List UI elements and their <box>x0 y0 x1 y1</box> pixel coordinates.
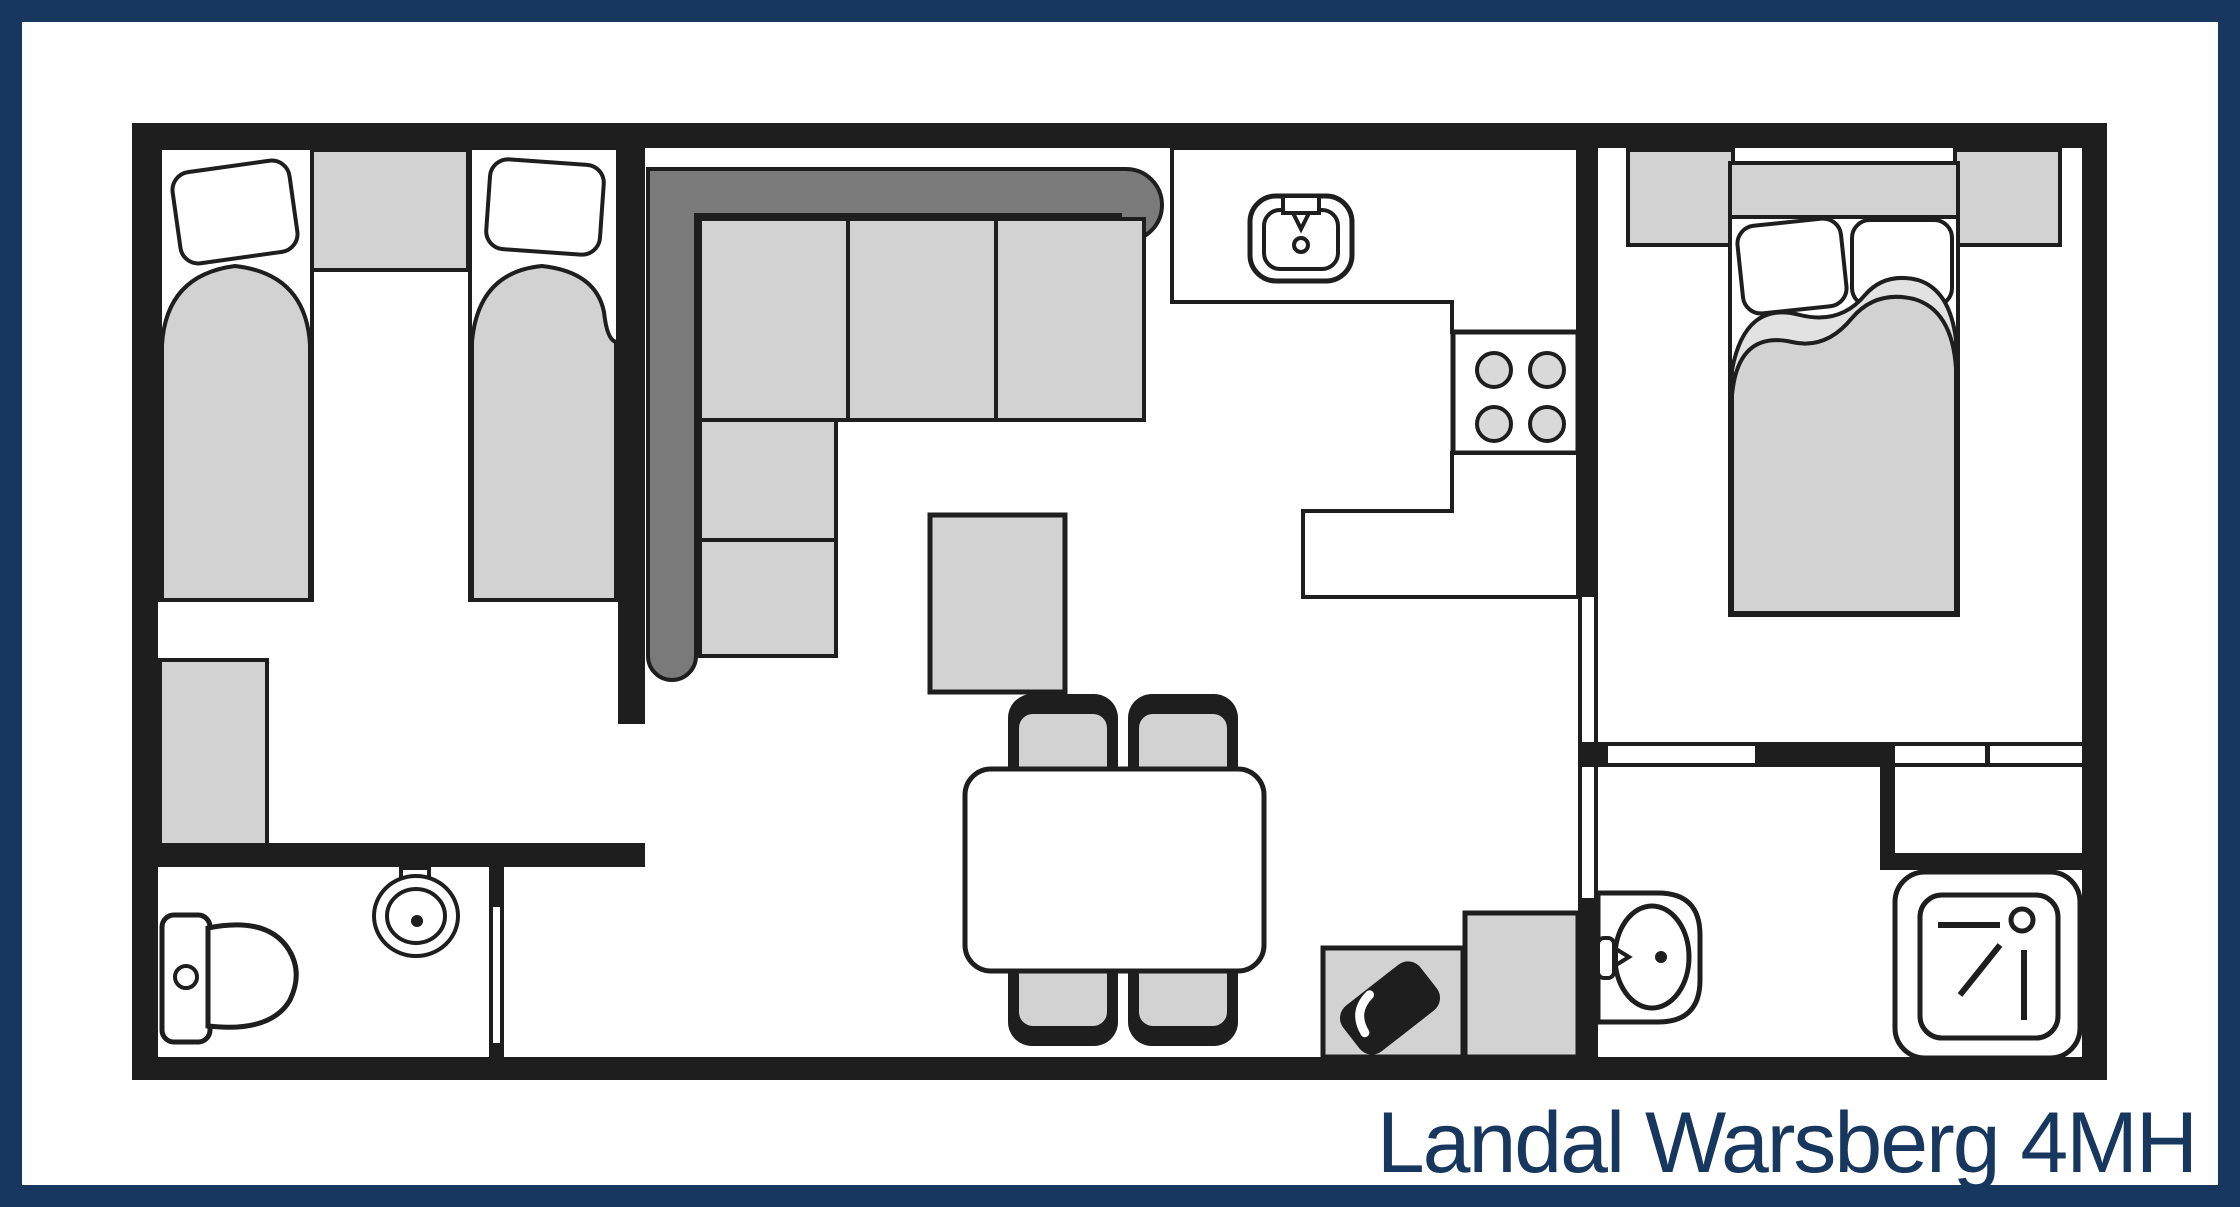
nightstand-icon <box>1628 150 1733 245</box>
door-opening-icon <box>1578 597 1582 742</box>
wall-junction <box>1578 742 1608 767</box>
wall-top <box>132 123 2107 148</box>
wall-bedroom-right-bottom <box>1755 742 1895 767</box>
wall-toilet-room <box>489 867 504 907</box>
sofa-cushion <box>700 219 848 420</box>
wall-bathroom-right <box>1578 898 1598 1057</box>
wall-closet <box>1880 742 1895 870</box>
wardrobe-icon <box>160 660 267 845</box>
shower-icon <box>1895 872 2080 1058</box>
coffee-table-icon <box>930 515 1065 692</box>
sideboard-icon <box>1465 913 1578 1057</box>
blanket-icon <box>472 266 616 600</box>
pillow-icon <box>485 158 605 256</box>
wall-right <box>2082 123 2107 1080</box>
blanket-icon <box>162 266 310 600</box>
washbasin-icon <box>1598 893 1700 1022</box>
wall-closet-bottom <box>1895 853 2082 870</box>
wall-bottom <box>132 1057 2107 1080</box>
stove-icon <box>1453 332 1578 453</box>
wall-toilet-room <box>489 1043 504 1057</box>
door-opening-icon <box>500 907 504 1043</box>
kitchen-sink-icon <box>1250 196 1352 281</box>
door-opening-icon <box>1608 742 1755 746</box>
wall-bedroom-left-bottom <box>132 843 645 867</box>
single-bed-left <box>160 148 312 600</box>
nightstand-icon <box>312 150 468 270</box>
plan-title: Landal Warsberg 4MH <box>1377 1095 2196 1191</box>
door-opening-icon <box>1578 767 1582 898</box>
door-opening-icon <box>1594 767 1598 898</box>
dining-table-icon <box>965 769 1264 971</box>
floorplan-page: Landal Warsberg 4MH <box>0 0 2240 1207</box>
wall-left <box>132 123 158 1080</box>
sofa-cushion <box>996 219 1144 420</box>
double-bed <box>1730 163 1958 615</box>
nightstand-icon <box>1955 150 2060 245</box>
sofa-cushion <box>848 219 996 420</box>
door-opening-icon <box>1608 763 1755 767</box>
wall-bedroom-left <box>618 148 645 724</box>
wall-bedroom-right <box>1578 148 1598 597</box>
closet-door-divider <box>1985 742 1990 767</box>
single-bed-right <box>470 148 618 600</box>
pillow-icon <box>170 158 300 266</box>
headboard <box>1730 163 1958 217</box>
sofa-cushion <box>700 540 836 656</box>
sofa-cushion <box>700 420 836 540</box>
door-opening-icon <box>489 907 493 1043</box>
floorplan-image: Landal Warsberg 4MH <box>0 0 2240 1207</box>
door-opening-icon <box>1594 597 1598 742</box>
pillow-icon <box>1736 217 1849 315</box>
blanket-icon <box>1732 297 1956 613</box>
dining-set <box>965 694 1264 1046</box>
